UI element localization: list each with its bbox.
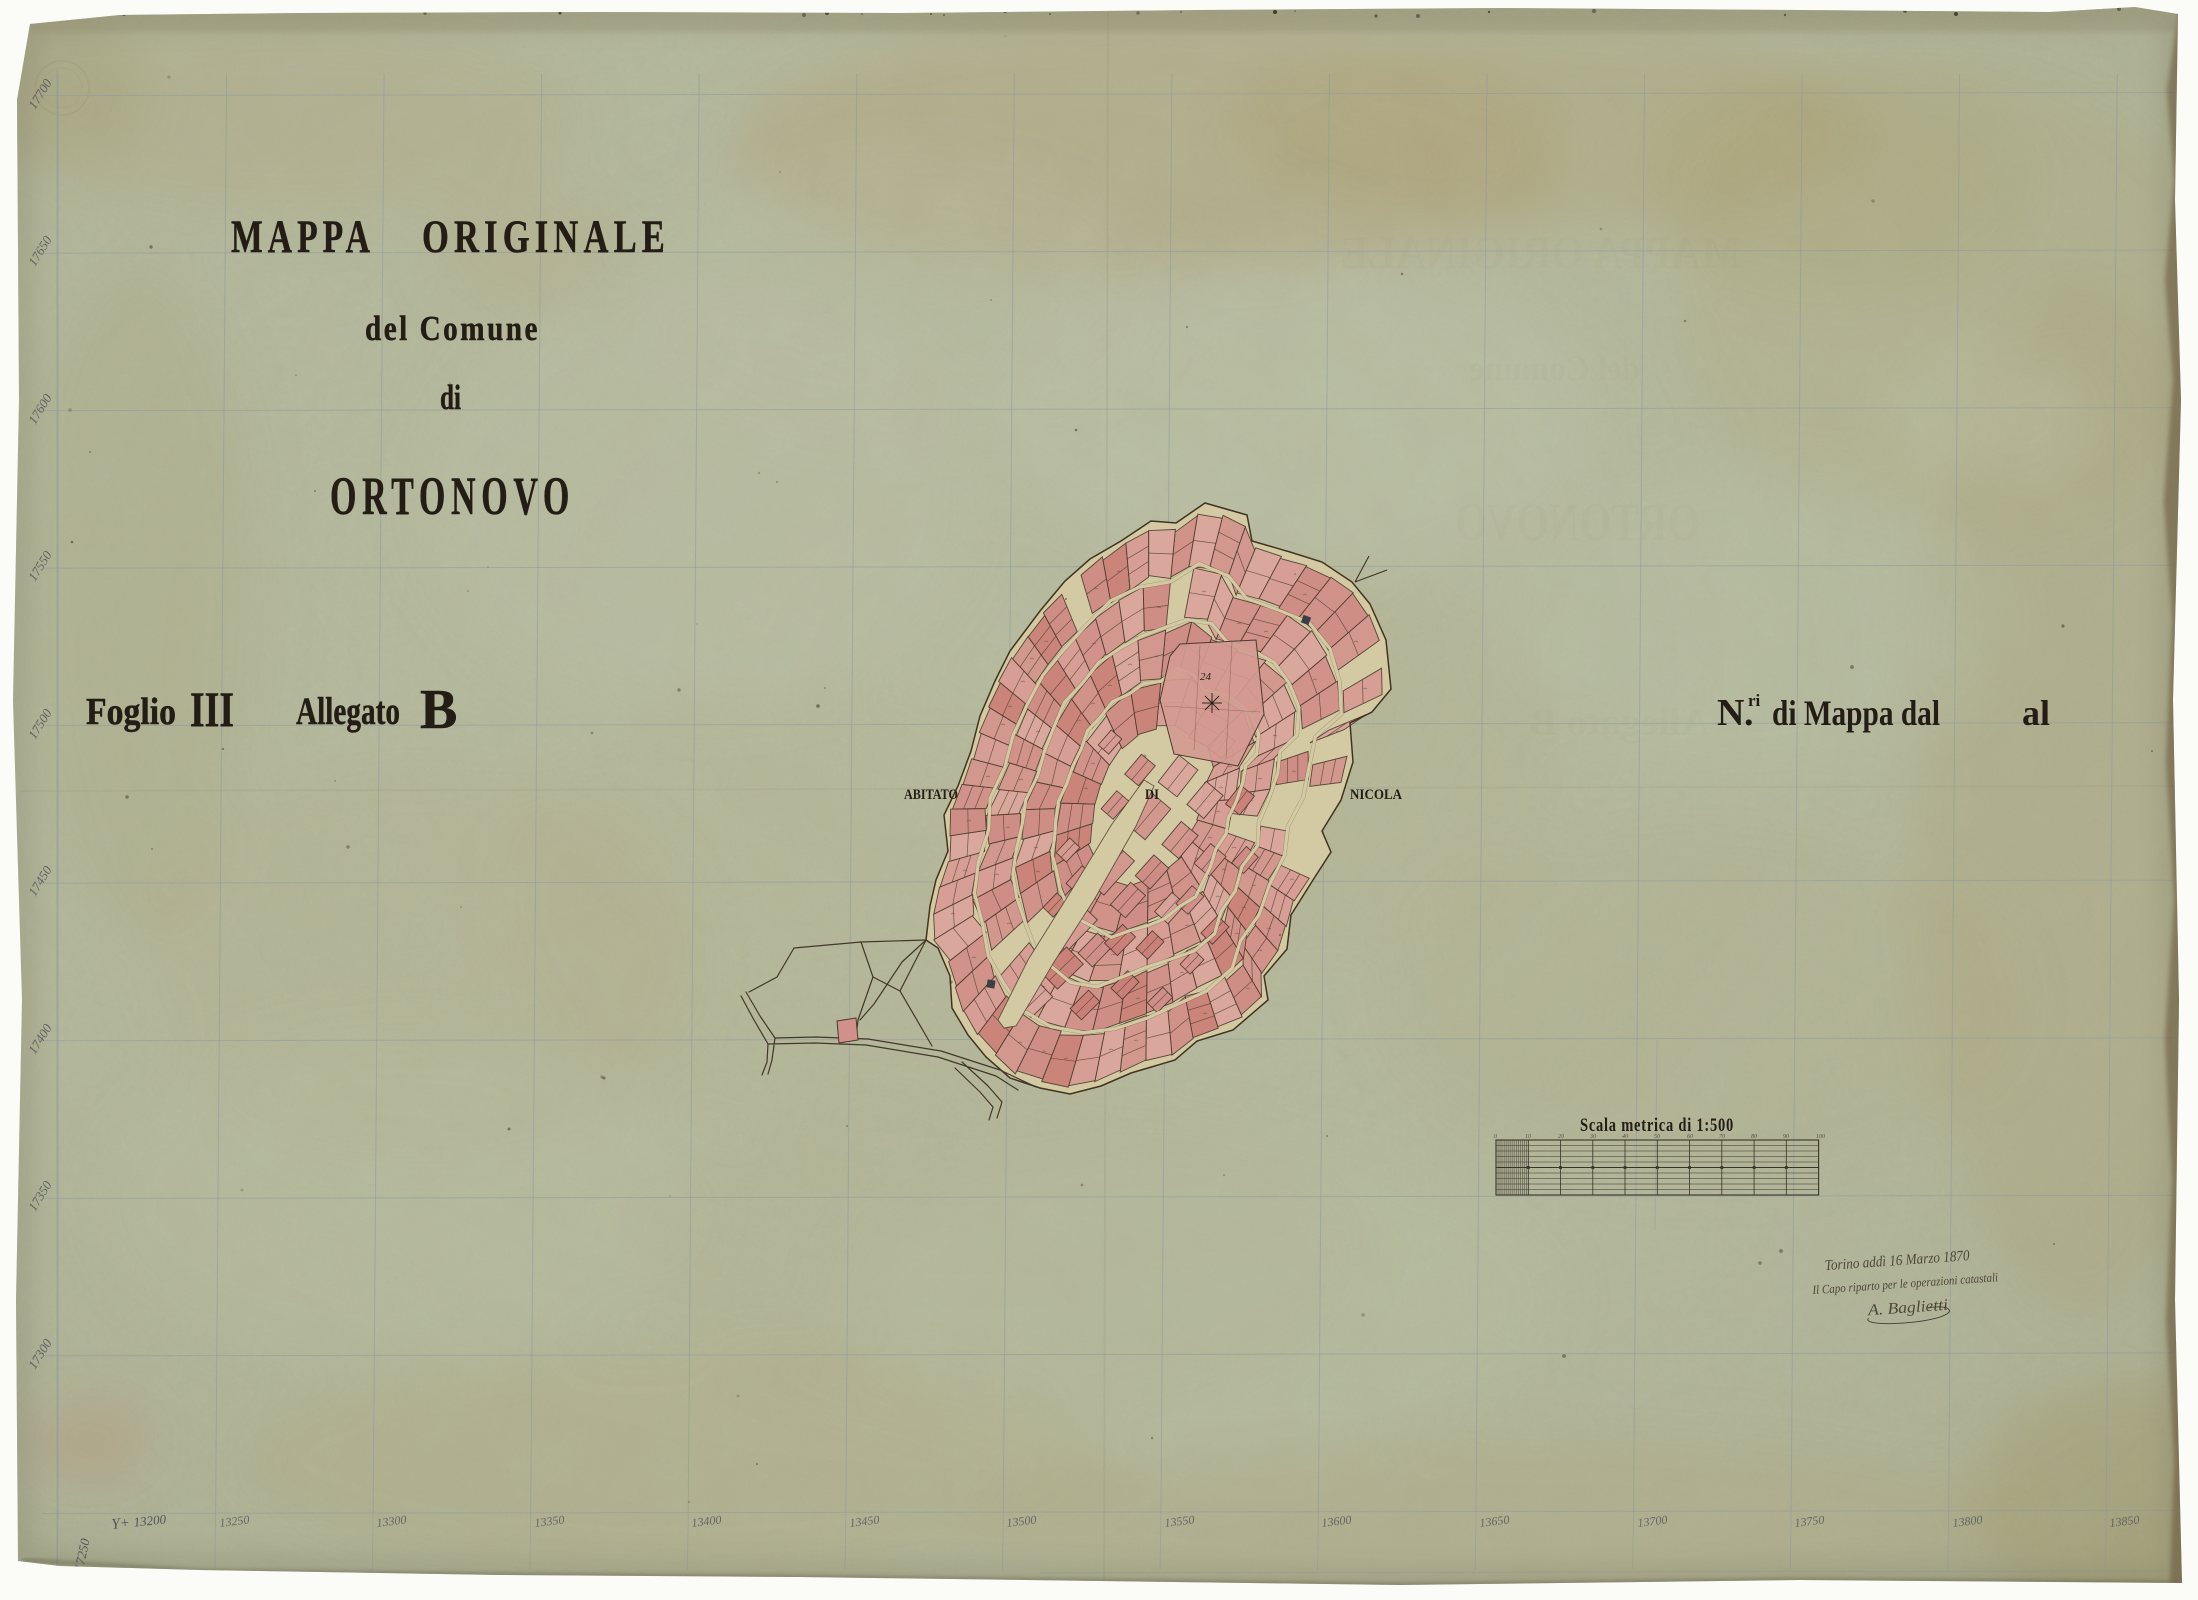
svg-text:MAPPA: MAPPA: [231, 211, 375, 263]
svg-text:ORTONOVO: ORTONOVO: [1455, 492, 1700, 552]
svg-text:100: 100: [1816, 1134, 1825, 1140]
svg-text:50: 50: [1654, 1134, 1660, 1140]
svg-text:ri: ri: [1748, 691, 1761, 710]
svg-text:di: di: [440, 378, 461, 417]
svg-text:DI: DI: [1145, 787, 1159, 803]
svg-text:10: 10: [1525, 1134, 1531, 1140]
svg-text:40: 40: [1622, 1133, 1628, 1140]
svg-text:III: III: [190, 681, 234, 737]
svg-text:Scala metrica di 1:500: Scala metrica di 1:500: [1580, 1115, 1734, 1136]
svg-text:ORTONOVO: ORTONOVO: [330, 466, 575, 526]
svg-text:ORIGINALE: ORIGINALE: [422, 211, 670, 263]
svg-text:del Comune: del Comune: [365, 309, 540, 348]
svg-text:del Comune: del Comune: [1470, 349, 1640, 388]
svg-text:al: al: [2022, 693, 2050, 733]
svg-text:B: B: [420, 679, 457, 741]
svg-text:24: 24: [1200, 671, 1212, 683]
svg-text:60: 60: [1687, 1134, 1693, 1140]
svg-text:Foglio: Foglio: [86, 691, 176, 733]
svg-text:20: 20: [1558, 1134, 1564, 1140]
svg-text:80: 80: [1751, 1134, 1757, 1140]
svg-text:ABITATO: ABITATO: [904, 787, 958, 803]
svg-text:N: N: [1717, 692, 1744, 734]
svg-text:NICOLA: NICOLA: [1350, 787, 1402, 803]
svg-text:0: 0: [1494, 1134, 1497, 1140]
svg-text:90: 90: [1783, 1134, 1789, 1140]
svg-text:70: 70: [1719, 1134, 1725, 1140]
svg-text:30: 30: [1589, 1134, 1596, 1140]
svg-text:Allegato B: Allegato B: [1530, 701, 1710, 744]
svg-text:Allegato: Allegato: [296, 690, 400, 733]
svg-text:MAPPA ORIGINALE: MAPPA ORIGINALE: [1340, 227, 1740, 279]
svg-text:di Mappa dal: di Mappa dal: [1772, 693, 1940, 733]
